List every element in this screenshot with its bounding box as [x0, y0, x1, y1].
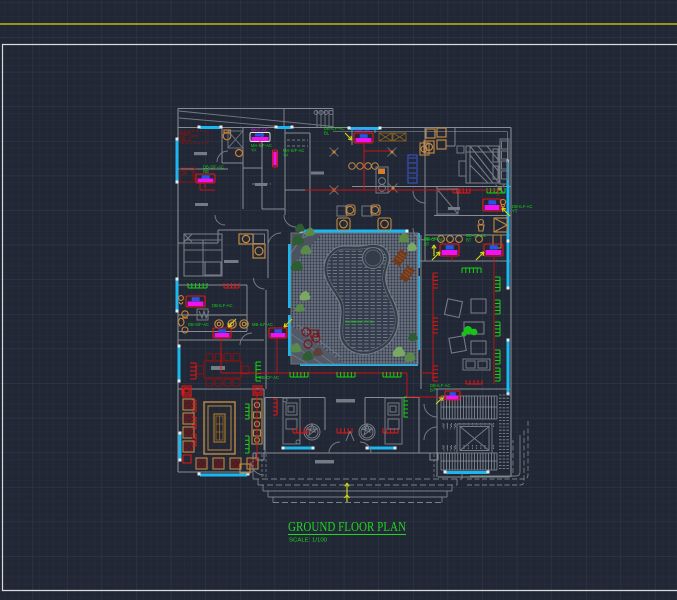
svg-text:DB-AC: DB-AC — [424, 236, 437, 241]
svg-text:SCALE: 1/100: SCALE: 1/100 — [289, 538, 327, 544]
svg-text:BT: BT — [466, 238, 472, 243]
svg-text:WAC-AC: WAC-AC — [355, 128, 372, 133]
svg-text:SWIMMING POOL: SWIMMING POOL — [345, 320, 374, 324]
svg-text:YT: YT — [512, 209, 518, 214]
svg-text:RB: RB — [203, 169, 209, 174]
svg-text:DB-S/F-AC: DB-S/F-AC — [188, 322, 209, 327]
svg-text:YA: YA — [283, 153, 288, 158]
svg-text:DB-CF-AC: DB-CF-AC — [259, 375, 279, 380]
svg-text:BT: BT — [430, 388, 436, 393]
svg-text:WAC-AC: WAC-AC — [251, 128, 268, 133]
svg-text:DB-ILF-AC: DB-ILF-AC — [212, 303, 232, 308]
svg-text:GROUND FLOOR PLAN: GROUND FLOOR PLAN — [288, 519, 406, 534]
svg-text:MB-ILF-AC: MB-ILF-AC — [252, 322, 273, 327]
svg-text:YA: YA — [251, 148, 256, 153]
svg-text:BL: BL — [324, 131, 330, 136]
svg-text:BT: BT — [424, 242, 430, 247]
